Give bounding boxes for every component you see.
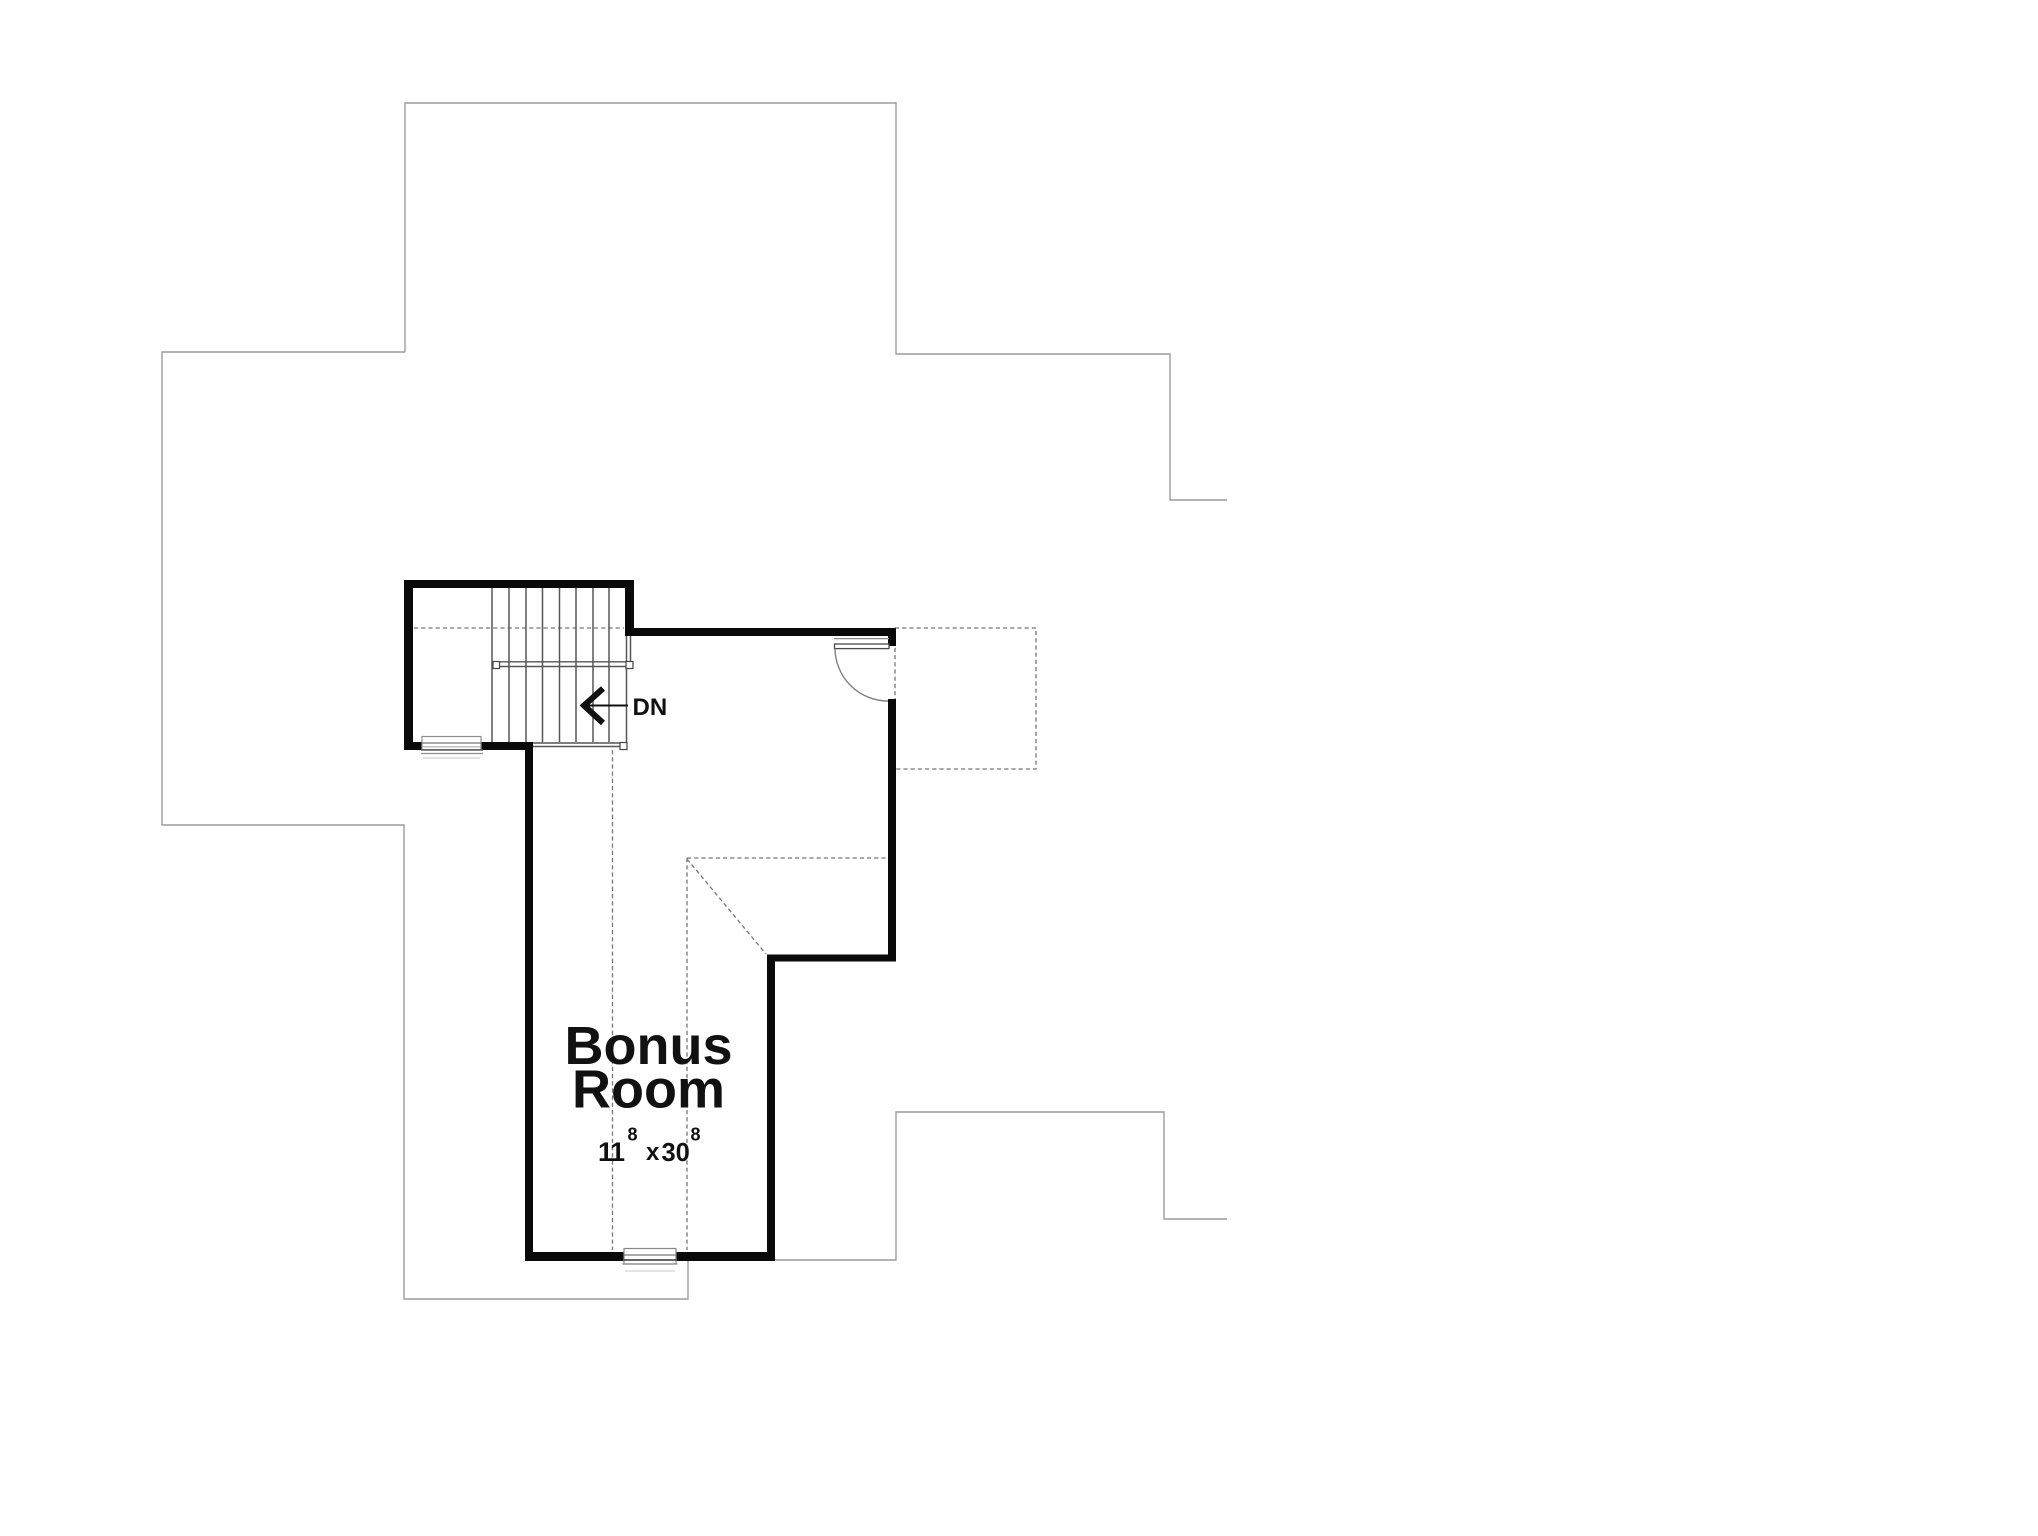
- svg-text:30: 30: [662, 1139, 690, 1167]
- svg-text:8: 8: [628, 1125, 638, 1145]
- svg-text:x: x: [646, 1139, 660, 1166]
- svg-text:11: 11: [598, 1137, 625, 1167]
- svg-text:8: 8: [691, 1125, 701, 1145]
- svg-text:DN: DN: [633, 694, 668, 721]
- svg-text:Room: Room: [572, 1060, 725, 1120]
